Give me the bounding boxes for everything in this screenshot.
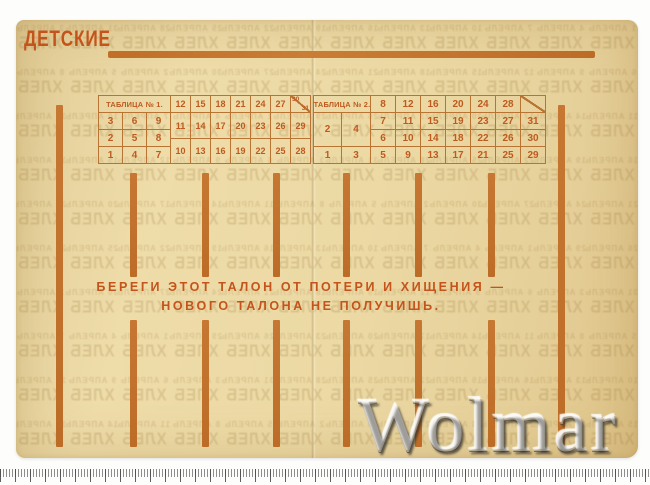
table-cell: 25	[496, 147, 521, 164]
ghost-cell: 13 АПРЕЛЬХЛЕБ	[274, 240, 326, 284]
ghost-date: 6 АПРЕЛЬ	[586, 68, 638, 77]
table-cell: 4	[123, 147, 147, 164]
ghost-date: 11 АПРЕЛЬ	[222, 200, 274, 209]
warning-text-line1: БЕРЕГИ ЭТОТ ТАЛОН ОТ ПОТЕРИ И ХИЩЕНИЯ —	[16, 280, 586, 294]
ghost-cell: 4 АПРЕЛЬХЛЕБ	[66, 328, 118, 372]
ghost-cell: 26 АПРЕЛЬХЛЕБ	[586, 240, 638, 284]
ghost-date: 31 АПРЕЛЬ	[586, 288, 638, 297]
ghost-word: ХЛЕБ	[274, 166, 326, 186]
ghost-word: ХЛЕБ	[378, 166, 430, 186]
ghost-cell: 23 АПРЕЛЬХЛЕБ	[274, 328, 326, 372]
ghost-date: 20 АПРЕЛЬ	[66, 200, 118, 209]
ghost-date: 29 АПРЕЛЬ	[170, 332, 222, 341]
ghost-date: 8 АПРЕЛЬ	[170, 420, 222, 429]
ghost-word: ХЛЕБ	[118, 342, 170, 362]
ghost-word: ХЛЕБ	[170, 342, 222, 362]
ghost-word: ХЛЕБ	[586, 342, 638, 362]
ghost-cell: 30 АПРЕЛЬХЛЕБ	[430, 196, 482, 240]
ghost-date: 22 АПРЕЛЬ	[222, 24, 274, 33]
table-cell: 2	[99, 130, 123, 147]
ghost-word: ХЛЕБ	[222, 386, 274, 406]
ghost-date: 6 АПРЕЛЬ	[118, 376, 170, 385]
ghost-date: 21 АПРЕЛЬ	[586, 200, 638, 209]
table-1-header: ТАБЛИЦА № 1.	[99, 96, 171, 113]
table-cell: 7	[371, 113, 396, 130]
table-1-right-block: 1215182124273031111417202326291013161922…	[170, 95, 311, 164]
ghost-date: 26 АПРЕЛЬ	[222, 332, 274, 341]
ghost-word: ХЛЕБ	[66, 430, 118, 450]
table-cell: 20	[231, 113, 251, 139]
ghost-word: ХЛЕБ	[170, 254, 222, 274]
ghost-cell: 10 АПРЕЛЬХЛЕБ	[326, 240, 378, 284]
ghost-cell: 19 АПРЕЛЬХЛЕБ	[170, 240, 222, 284]
table-cell: 3	[99, 113, 123, 130]
ghost-date: 15 АПРЕЛЬ	[430, 68, 482, 77]
ghost-word: ХЛЕБ	[118, 386, 170, 406]
table-cell: 13	[421, 147, 446, 164]
ghost-word: ХЛЕБ	[586, 210, 638, 230]
table-cell: 27	[496, 113, 521, 130]
ghost-date: 1 АПРЕЛЬ	[118, 332, 170, 341]
table-cell: 11	[396, 113, 421, 130]
table-cell: 6	[371, 130, 396, 147]
table-cell: 20	[446, 96, 471, 113]
ghost-word: ХЛЕБ	[274, 254, 326, 274]
ghost-word: ХЛЕБ	[274, 386, 326, 406]
ghost-date: 4 АПРЕЛЬ	[66, 332, 118, 341]
table-cell: 12	[171, 96, 191, 113]
ghost-date: 21 АПРЕЛЬ	[326, 68, 378, 77]
ghost-date: 10 АПРЕЛЬ	[326, 244, 378, 253]
ghost-word: ХЛЕБ	[222, 210, 274, 230]
table-1-left-block: ТАБЛИЦА № 1.369258147	[98, 95, 171, 164]
ghost-date: 9 АПРЕЛЬ	[534, 68, 586, 77]
ghost-date: 5 АПРЕЛЬ	[586, 332, 638, 341]
ghost-word: ХЛЕБ	[222, 430, 274, 450]
ghost-cell: 5 АПРЕЛЬХЛЕБ	[586, 328, 638, 372]
table-2-header: ТАБЛИЦА № 2.	[314, 96, 371, 113]
ghost-word: ХЛЕБ	[66, 254, 118, 274]
ghost-date: 14 АПРЕЛЬ	[430, 332, 482, 341]
separator-bar-upper	[130, 173, 137, 277]
ghost-date: 18 АПРЕЛЬ	[378, 68, 430, 77]
ghost-date: 5 АПРЕЛЬ	[222, 420, 274, 429]
table-cell: 9	[396, 147, 421, 164]
ghost-cell: 2 АПРЕЛЬХЛЕБ	[378, 196, 430, 240]
separator-bar-upper	[343, 173, 350, 277]
wolmar-watermark: Wolmar	[358, 394, 619, 459]
top-orange-rule	[108, 51, 595, 58]
ghost-date: 11 АПРЕЛЬ	[118, 420, 170, 429]
ghost-date: 3 АПРЕЛЬ	[170, 376, 222, 385]
diagonal-cell	[521, 96, 546, 113]
table-cell: 10	[396, 130, 421, 147]
ghost-date: 14 АПРЕЛЬ	[66, 420, 118, 429]
ghost-date: 20 АПРЕЛЬ	[326, 332, 378, 341]
fold-crease-line	[311, 20, 316, 458]
ghost-word: ХЛЕБ	[586, 122, 638, 142]
ghost-date: 8 АПРЕЛЬ	[274, 200, 326, 209]
table-cell: 7	[147, 147, 171, 164]
ghost-date: 19 АПРЕЛЬ	[170, 244, 222, 253]
ghost-date: 13 АПРЕЛЬ	[378, 24, 430, 33]
table-cell: 18	[446, 130, 471, 147]
table-cell: 29	[291, 113, 311, 139]
table-cell: 22	[471, 130, 496, 147]
ghost-cell: 4 АПРЕЛЬХЛЕБ	[430, 240, 482, 284]
ghost-word: ХЛЕБ	[66, 166, 118, 186]
table-cell: 30	[521, 130, 546, 147]
ghost-cell: 26 АПРЕЛЬХЛЕБ	[222, 328, 274, 372]
ghost-date: 30 АПРЕЛЬ	[170, 68, 222, 77]
separator-bar-long	[56, 105, 63, 447]
ghost-date: 17 АПРЕЛЬ	[118, 200, 170, 209]
table-cell: 14	[421, 130, 446, 147]
ghost-cell: 11 АПРЕЛЬХЛЕБ	[118, 416, 170, 458]
table-cell: 28	[291, 139, 311, 164]
table-cell: 17	[446, 147, 471, 164]
ghost-date: 16 АПРЕЛЬ	[586, 156, 638, 165]
ghost-word: ХЛЕБ	[274, 210, 326, 230]
ghost-word: ХЛЕБ	[326, 342, 378, 362]
ghost-date: 5 АПРЕЛЬ	[326, 200, 378, 209]
ghost-cell: 3 АПРЕЛЬХЛЕБ	[170, 372, 222, 416]
table-cell: 11	[171, 113, 191, 139]
ghost-cell: 11 АПРЕЛЬХЛЕБ	[586, 108, 638, 152]
ghost-date: 31 АПРЕЛЬ	[222, 376, 274, 385]
ghost-date: 22 АПРЕЛЬ	[118, 244, 170, 253]
separator-bar-upper	[202, 173, 209, 277]
ghost-date: 2 АПРЕЛЬ	[274, 420, 326, 429]
table-cell: 15	[421, 113, 446, 130]
ghost-date: 25 АПРЕЛЬ	[170, 24, 222, 33]
ghost-word: ХЛЕБ	[66, 386, 118, 406]
separator-bar-upper	[488, 173, 495, 277]
ghost-cell: 8 АПРЕЛЬХЛЕБ	[16, 64, 66, 108]
ghost-cell: 14 АПРЕЛЬХЛЕБ	[170, 196, 222, 240]
separator-bar-lower	[130, 320, 137, 447]
ghost-cell: 2 АПРЕЛЬХЛЕБ	[274, 416, 326, 458]
ghost-word: ХЛЕБ	[118, 254, 170, 274]
ghost-cell: 20 АПРЕЛЬХЛЕБ	[66, 196, 118, 240]
separator-bar-lower	[202, 320, 209, 447]
ghost-cell: 22 АПРЕЛЬХЛЕБ	[118, 240, 170, 284]
ghost-date: 2 АПРЕЛЬ	[378, 200, 430, 209]
ghost-word: ХЛЕБ	[170, 166, 222, 186]
ghost-cell: 25 АПРЕЛЬХЛЕБ	[66, 240, 118, 284]
ghost-date: 2 АПРЕЛЬ	[118, 68, 170, 77]
ghost-word: ХЛЕБ	[118, 166, 170, 186]
ghost-cell: 20 АПРЕЛЬХЛЕБ	[326, 328, 378, 372]
ghost-date: 28 АПРЕЛЬ	[118, 24, 170, 33]
table-cell: 17	[211, 113, 231, 139]
table-cell: 24	[471, 96, 496, 113]
table-cell: 3	[342, 147, 371, 164]
ghost-word: ХЛЕБ	[430, 210, 482, 230]
ghost-word: ХЛЕБ	[586, 166, 638, 186]
ghost-word: ХЛЕБ	[274, 430, 326, 450]
table-cell: 12	[396, 96, 421, 113]
table-cell: 26	[271, 113, 291, 139]
ghost-date: 7 АПРЕЛЬ	[482, 24, 534, 33]
ghost-date: 26 АПРЕЛЬ	[586, 244, 638, 253]
ghost-date: 13 АПРЕЛЬ	[274, 244, 326, 253]
ghost-word: ХЛЕБ	[586, 298, 638, 318]
ghost-date: 12 АПРЕЛЬ	[482, 68, 534, 77]
ghost-word: ХЛЕБ	[274, 342, 326, 362]
ghost-word: ХЛЕБ	[170, 386, 222, 406]
ghost-cell: 14 АПРЕЛЬХЛЕБ	[430, 328, 482, 372]
ghost-date: 10 АПРЕЛЬ	[430, 24, 482, 33]
ghost-word: ХЛЕБ	[378, 210, 430, 230]
ghost-cell: 6 АПРЕЛЬХЛЕБ	[118, 372, 170, 416]
ghost-word: ХЛЕБ	[378, 342, 430, 362]
ghost-cell: 14 АПРЕЛЬХЛЕБ	[66, 416, 118, 458]
ghost-word: ХЛЕБ	[222, 166, 274, 186]
ghost-word: ХЛЕБ	[118, 430, 170, 450]
table-cell: 23	[471, 113, 496, 130]
table-cell: 5	[123, 130, 147, 147]
ghost-cell: 31 АПРЕЛЬХЛЕБ	[222, 372, 274, 416]
ghost-cell: 16 АПРЕЛЬХЛЕБ	[222, 240, 274, 284]
ghost-cell: 31 АПРЕЛЬХЛЕБ	[586, 284, 638, 328]
ghost-cell: 9 АПРЕЛЬХЛЕБ	[66, 372, 118, 416]
ghost-word: ХЛЕБ	[16, 78, 66, 98]
ghost-word: ХЛЕБ	[222, 342, 274, 362]
table-cell: 6	[123, 113, 147, 130]
ghost-word: ХЛЕБ	[326, 254, 378, 274]
ghost-word: ХЛЕБ	[326, 166, 378, 186]
separator-bar-lower	[343, 320, 350, 447]
ghost-word: ХЛЕБ	[586, 254, 638, 274]
table-2-left-block: ТАБЛИЦА № 2.2413	[313, 95, 371, 164]
ghost-date: 11 АПРЕЛЬ	[586, 112, 638, 121]
ghost-cell: 28 АПРЕЛЬХЛЕБ	[274, 372, 326, 416]
table-cell: 22	[251, 139, 271, 164]
table-cell: 25	[271, 139, 291, 164]
table-cell: 23	[251, 113, 271, 139]
ghost-date: 16 АПРЕЛЬ	[222, 244, 274, 253]
table-cell: 19	[231, 139, 251, 164]
coupon-title: ДЕТСКИЕ	[24, 27, 111, 52]
table-cell: 27	[271, 96, 291, 113]
table-cell: 2	[314, 113, 342, 147]
ghost-cell: 5 АПРЕЛЬХЛЕБ	[326, 196, 378, 240]
separator-bar-lower	[273, 320, 280, 447]
measurement-ruler	[0, 469, 650, 485]
table-cell: 9	[147, 113, 171, 130]
ghost-date: 4 АПРЕЛЬ	[430, 244, 482, 253]
ghost-cell: 7 АПРЕЛЬХЛЕБ	[378, 240, 430, 284]
table-cell: 19	[446, 113, 471, 130]
ghost-word: ХЛЕБ	[326, 210, 378, 230]
ghost-cell: 21 АПРЕЛЬХЛЕБ	[586, 196, 638, 240]
table-cell: 14	[191, 113, 211, 139]
table-cell: 8	[371, 96, 396, 113]
ghost-date: 30 АПРЕЛЬ	[430, 200, 482, 209]
table-cell: 31	[521, 113, 546, 130]
ghost-date: 16 АПРЕЛЬ	[326, 24, 378, 33]
ghost-date: 7 АПРЕЛЬ	[378, 244, 430, 253]
ghost-word: ХЛЕБ	[170, 210, 222, 230]
ghost-word: ХЛЕБ	[430, 342, 482, 362]
ghost-date: 28 АПРЕЛЬ	[274, 376, 326, 385]
ghost-cell: 8 АПРЕЛЬХЛЕБ	[170, 416, 222, 458]
ghost-word: ХЛЕБ	[66, 342, 118, 362]
ghost-cell: 8 АПРЕЛЬХЛЕБ	[274, 196, 326, 240]
diag-bottom-value: 31	[302, 105, 309, 112]
table-cell: 15	[191, 96, 211, 113]
separator-bar-upper	[415, 173, 422, 277]
table-cell: 21	[471, 147, 496, 164]
ghost-date: 14 АПРЕЛЬ	[170, 200, 222, 209]
ghost-word: ХЛЕБ	[430, 254, 482, 274]
ghost-word: ХЛЕБ	[586, 78, 638, 98]
table-cell: 29	[521, 147, 546, 164]
ghost-cell: 29 АПРЕЛЬХЛЕБ	[170, 328, 222, 372]
ghost-word: ХЛЕБ	[170, 430, 222, 450]
table-cell: 21	[231, 96, 251, 113]
ghost-cell: 1 АПРЕЛЬХЛЕБ	[118, 328, 170, 372]
ghost-word: ХЛЕБ	[430, 166, 482, 186]
scanned-ration-coupon-page: { "scan": { "title": "ДЕТСКИЕ", "warning…	[0, 0, 650, 485]
table-cell: 10	[171, 139, 191, 164]
table-cell: 16	[421, 96, 446, 113]
table-cell: 16	[211, 139, 231, 164]
ghost-word: ХЛЕБ	[66, 210, 118, 230]
ghost-date: 1 АПРЕЛЬ	[586, 24, 638, 33]
separator-bar-upper	[273, 173, 280, 277]
ghost-cell: 6 АПРЕЛЬХЛЕБ	[586, 64, 638, 108]
ghost-cell: 5 АПРЕЛЬХЛЕБ	[222, 416, 274, 458]
table-cell: 4	[342, 113, 371, 147]
ghost-cell: 17 АПРЕЛЬХЛЕБ	[378, 328, 430, 372]
ghost-word: ХЛЕБ	[118, 210, 170, 230]
table-cell: 1	[314, 147, 342, 164]
ghost-cell: 16 АПРЕЛЬХЛЕБ	[586, 152, 638, 196]
ghost-word: ХЛЕБ	[222, 254, 274, 274]
table-cell: 8	[147, 130, 171, 147]
table-cell: 5	[371, 147, 396, 164]
table-2-right-block: 8121620242871115192327316101418222630591…	[370, 95, 546, 164]
ghost-date: 5 АПРЕЛЬ	[66, 68, 118, 77]
table-cell: 24	[251, 96, 271, 113]
ghost-date: 19 АПРЕЛЬ	[274, 24, 326, 33]
table-cell: 26	[496, 130, 521, 147]
ghost-word: ХЛЕБ	[378, 254, 430, 274]
ghost-date: 23 АПРЕЛЬ	[274, 332, 326, 341]
ghost-date: 24 АПРЕЛЬ	[274, 68, 326, 77]
table-cell: 13	[191, 139, 211, 164]
diagonal-cell: 3031	[291, 96, 311, 113]
ghost-date: 17 АПРЕЛЬ	[378, 332, 430, 341]
ghost-date: 27 АПРЕЛЬ	[222, 68, 274, 77]
ghost-cell: 11 АПРЕЛЬХЛЕБ	[222, 196, 274, 240]
ghost-date: 25 АПРЕЛЬ	[66, 244, 118, 253]
ghost-date: 9 АПРЕЛЬ	[66, 376, 118, 385]
warning-text-line2: НОВОГО ТАЛОНА НЕ ПОЛУЧИШЬ.	[16, 299, 586, 313]
diag-top-value: 30	[292, 96, 299, 103]
table-cell: 28	[496, 96, 521, 113]
table-cell: 1	[99, 147, 123, 164]
ghost-cell: 17 АПРЕЛЬХЛЕБ	[118, 196, 170, 240]
ghost-date: 8 АПРЕЛЬ	[16, 68, 66, 77]
table-cell: 18	[211, 96, 231, 113]
ghost-date: 4 АПРЕЛЬ	[534, 24, 586, 33]
